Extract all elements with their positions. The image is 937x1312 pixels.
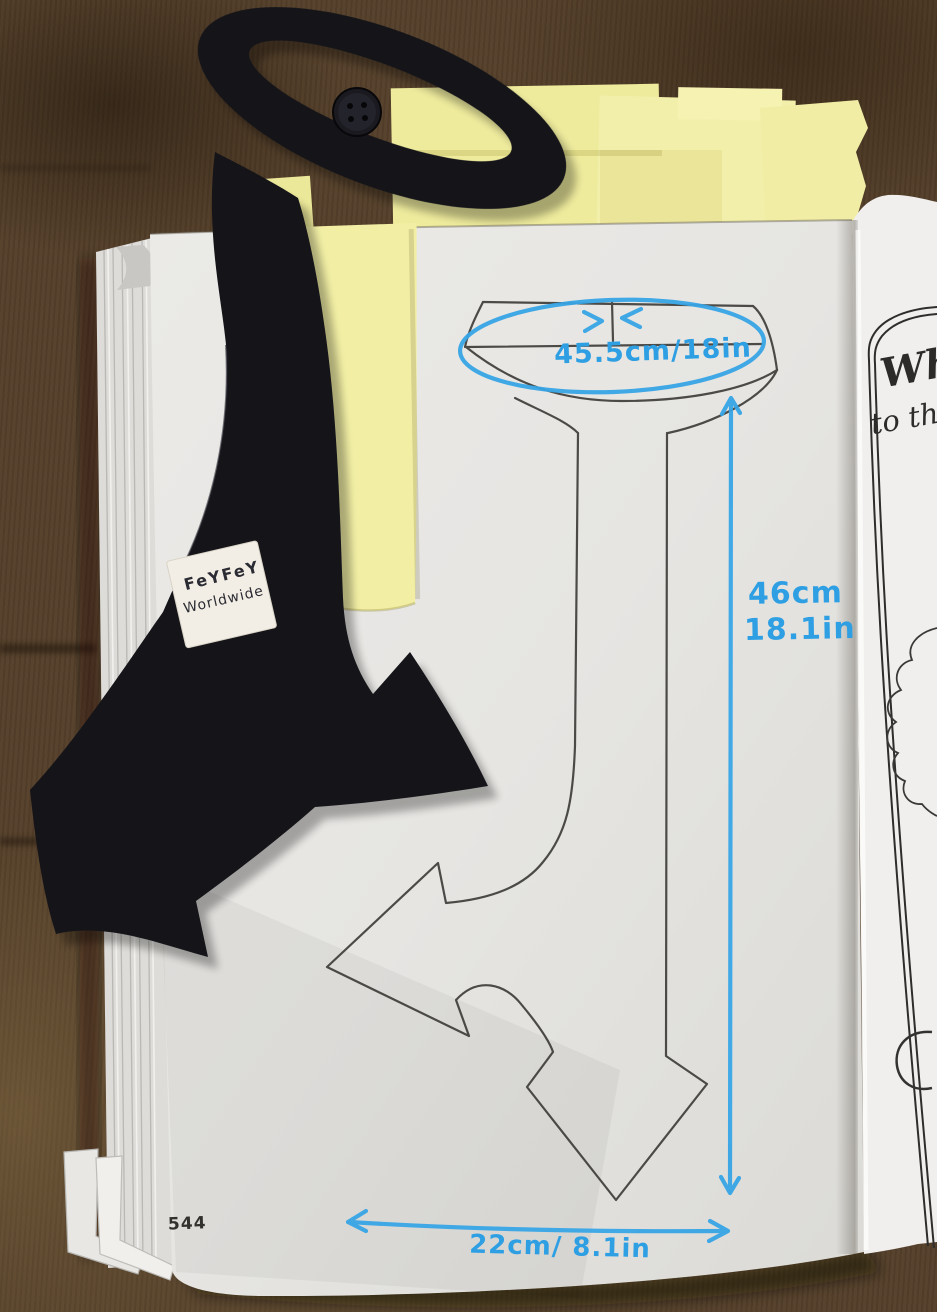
sticky-note-torn [760, 100, 868, 238]
pattern-center-tick [612, 302, 613, 341]
bookmark-button-face [338, 93, 376, 131]
photo-scene: FeYFeY Worldwide 45.5cm/18in 46cm 18.1in… [0, 0, 937, 1312]
scene-art [0, 0, 937, 1312]
gutter-shadow [836, 220, 858, 1254]
vertical-dimension-line [730, 399, 731, 1192]
